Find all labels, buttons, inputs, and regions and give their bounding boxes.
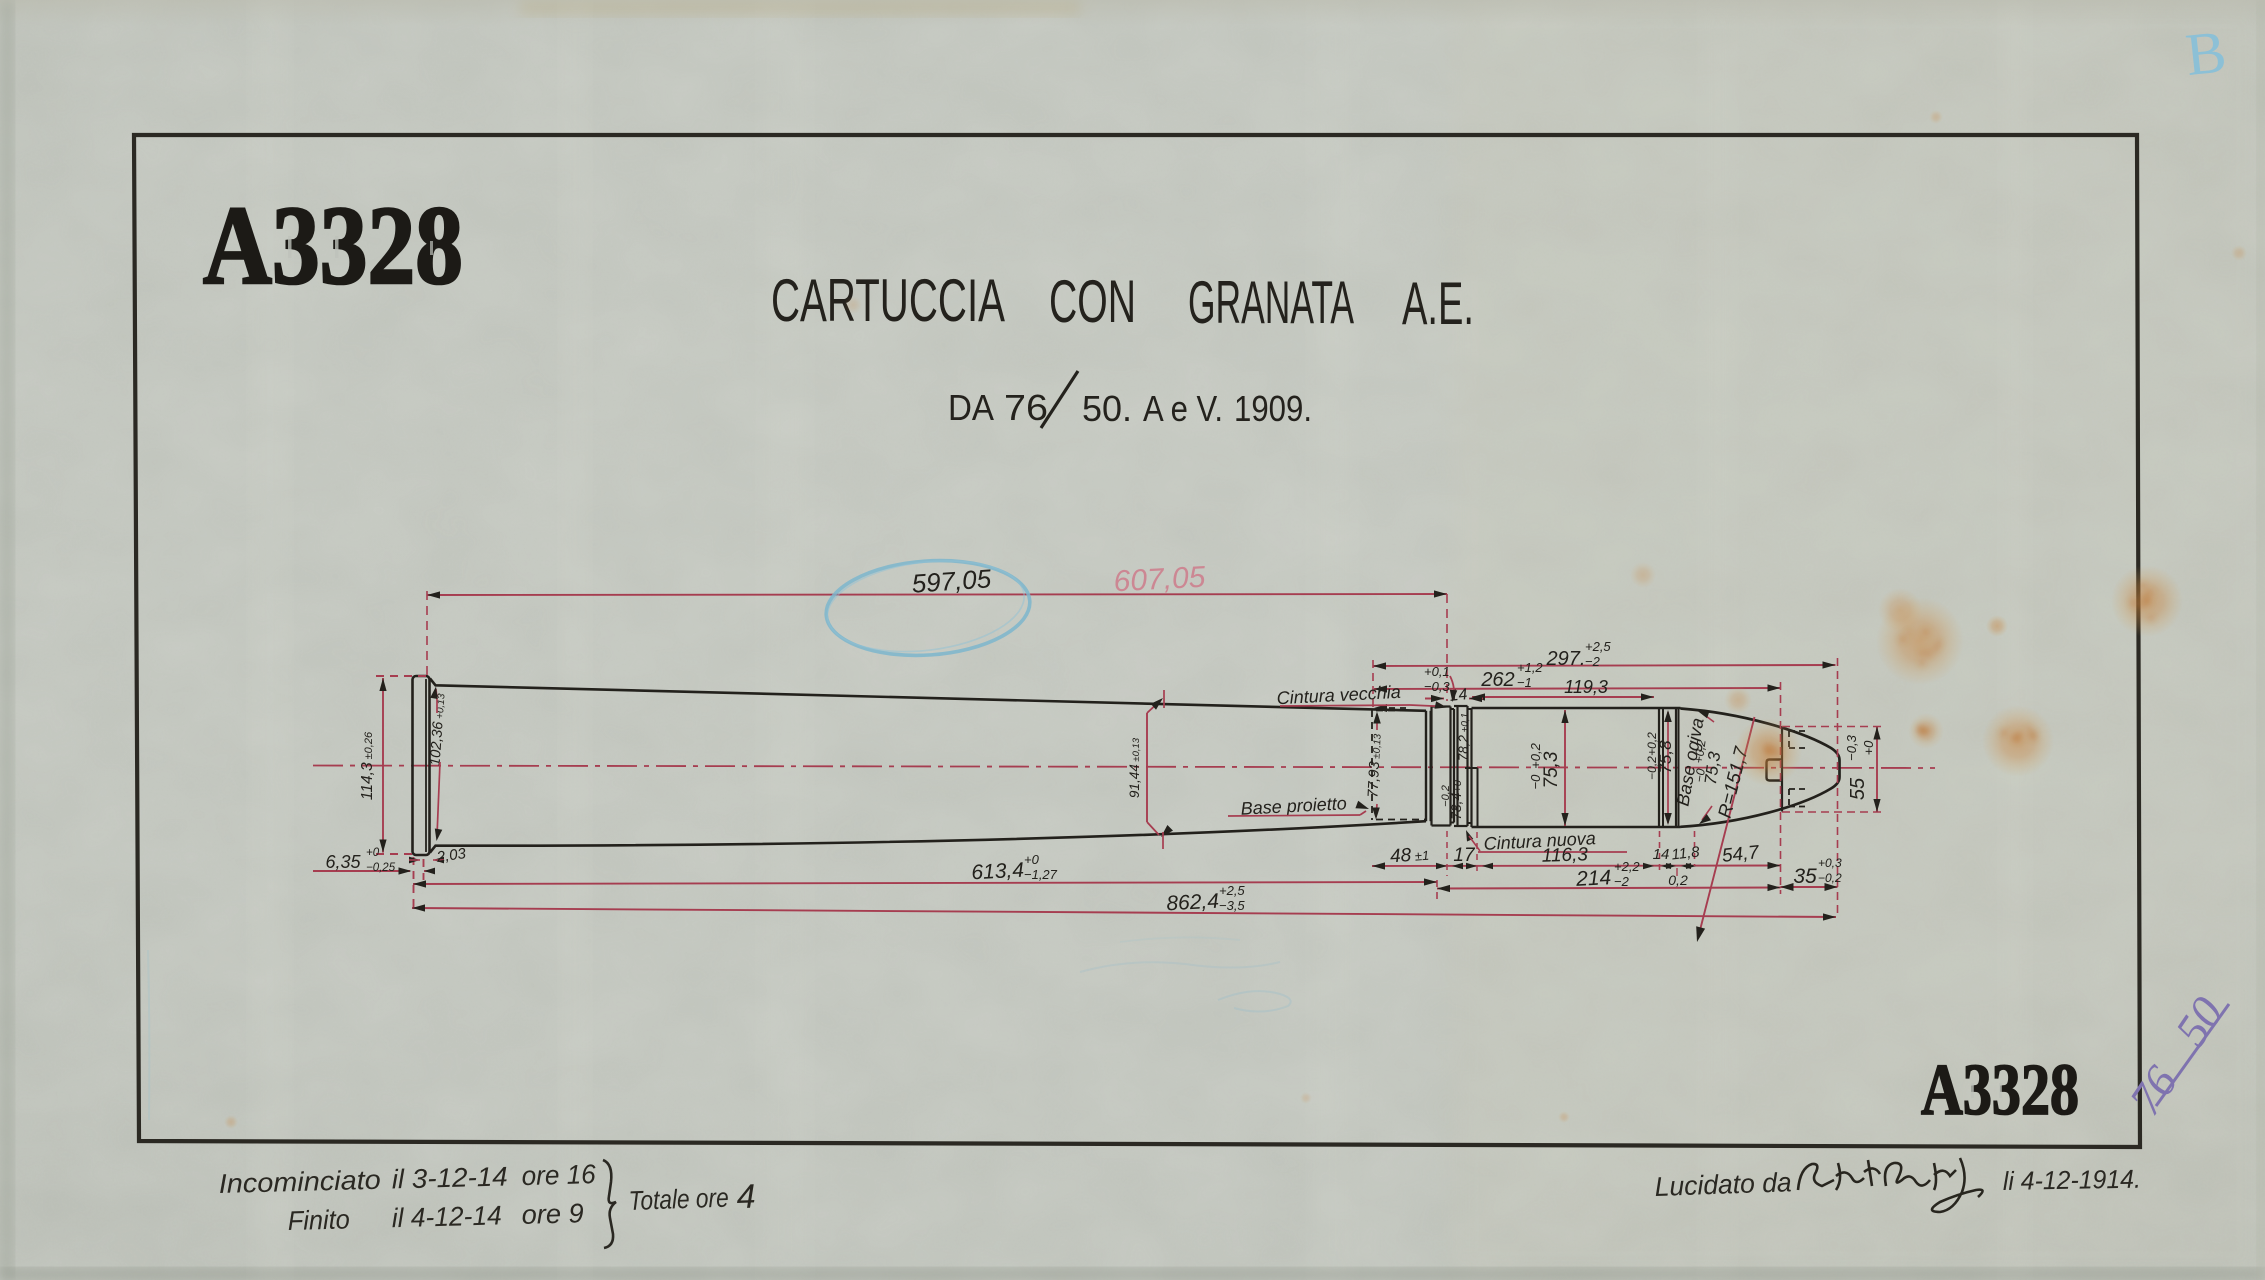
svg-text:17: 17 xyxy=(1453,845,1476,866)
svg-text:il 4-12-14: il 4-12-14 xyxy=(391,1200,502,1233)
svg-text:+2,5: +2,5 xyxy=(1219,883,1245,898)
svg-text:1909.: 1909. xyxy=(1234,388,1312,429)
svg-text:862,4: 862,4 xyxy=(1166,890,1220,916)
svg-text:−3,5: −3,5 xyxy=(1219,898,1245,913)
svg-text:CARTUCCIA: CARTUCCIA xyxy=(771,267,1005,334)
svg-text:75,3: 75,3 xyxy=(1541,751,1562,788)
svg-text:−0: −0 xyxy=(1692,767,1708,783)
svg-text:−0,2: −0,2 xyxy=(1440,785,1452,807)
svg-text:607,05: 607,05 xyxy=(1113,561,1207,599)
svg-text:14: 14 xyxy=(1653,846,1670,863)
svg-text:−0,3: −0,3 xyxy=(1424,679,1450,694)
svg-text:50.: 50. xyxy=(1082,388,1132,429)
svg-text:54,7: 54,7 xyxy=(1721,842,1761,867)
svg-text:214: 214 xyxy=(1575,866,1612,891)
svg-text:il 3-12-14: il 3-12-14 xyxy=(391,1161,508,1194)
svg-text:ore 16: ore 16 xyxy=(521,1159,597,1191)
svg-text:−2: −2 xyxy=(1614,874,1630,889)
svg-text:−1,27: −1,27 xyxy=(1024,867,1058,882)
svg-text:li 4-12-1914.: li 4-12-1914. xyxy=(2003,1164,2142,1196)
svg-text:6,35: 6,35 xyxy=(325,852,361,872)
svg-text:−0,3: −0,3 xyxy=(1844,734,1859,760)
svg-text:−2: −2 xyxy=(1585,654,1601,669)
svg-text:+0,1: +0,1 xyxy=(1424,664,1450,679)
svg-text:35: 35 xyxy=(1793,865,1817,888)
svg-text:−0: −0 xyxy=(1528,774,1543,790)
svg-text:11,8: 11,8 xyxy=(1671,844,1701,864)
svg-text:Lucidato da: Lucidato da xyxy=(1654,1167,1792,1202)
svg-text:+0: +0 xyxy=(1024,852,1040,867)
svg-text:55: 55 xyxy=(1847,777,1869,800)
svg-text:+0,2: +0,2 xyxy=(1528,742,1543,768)
svg-text:−0,2: −0,2 xyxy=(1818,871,1842,885)
svg-text:+0: +0 xyxy=(366,847,380,859)
svg-text:DA: DA xyxy=(948,387,994,428)
svg-text:A e V.: A e V. xyxy=(1143,388,1223,429)
svg-text:4: 4 xyxy=(736,1178,756,1217)
svg-text:B: B xyxy=(2183,18,2230,88)
svg-text:119,3: 119,3 xyxy=(1564,677,1608,697)
svg-text:ore 9: ore 9 xyxy=(521,1198,584,1230)
svg-text:+2,2: +2,2 xyxy=(1614,859,1640,874)
svg-text:Incominciato: Incominciato xyxy=(218,1165,381,1199)
svg-text:+2,5: +2,5 xyxy=(1585,639,1611,654)
svg-text:+1,2: +1,2 xyxy=(1517,660,1543,675)
svg-text:597,05: 597,05 xyxy=(911,563,993,599)
svg-text:+0,2: +0,2 xyxy=(1645,732,1659,756)
svg-text:Finito: Finito xyxy=(287,1204,350,1236)
svg-text:A.E.: A.E. xyxy=(1402,270,1474,337)
svg-text:297.: 297. xyxy=(1546,648,1586,670)
svg-text:+0: +0 xyxy=(1861,740,1876,756)
svg-text:262: 262 xyxy=(1480,669,1514,691)
svg-text:0,2: 0,2 xyxy=(1668,872,1688,888)
svg-text:−0,25: −0,25 xyxy=(366,862,396,874)
svg-text:76: 76 xyxy=(1004,387,1048,428)
svg-text:−0,2: −0,2 xyxy=(1645,756,1659,780)
svg-text:A3328: A3328 xyxy=(203,184,463,308)
svg-text:Totale ore: Totale ore xyxy=(628,1183,729,1216)
svg-text:−1: −1 xyxy=(1517,675,1532,690)
svg-text:116,3: 116,3 xyxy=(1541,844,1588,867)
svg-text:GRANATA: GRANATA xyxy=(1188,269,1354,336)
svg-text:+0,3: +0,3 xyxy=(1818,856,1842,870)
svg-text:CON: CON xyxy=(1049,268,1136,335)
svg-text:613,4: 613,4 xyxy=(971,859,1025,885)
